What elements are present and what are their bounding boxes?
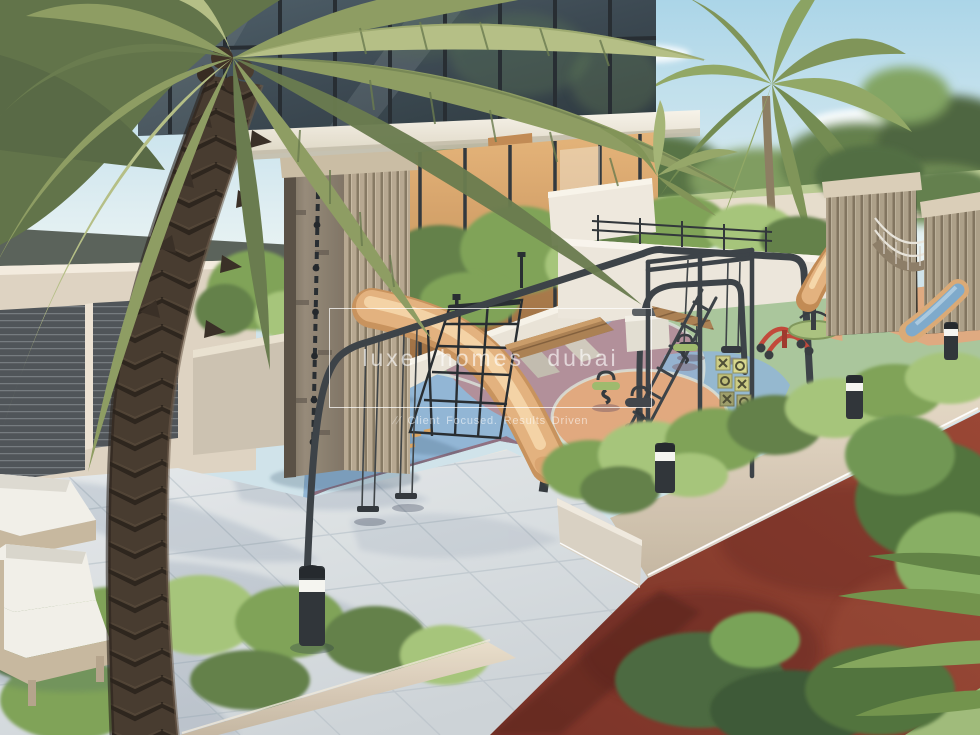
render-image: luxe homes dubai //Client Focused. Resul…	[0, 0, 980, 735]
watermark-slashes: //	[390, 415, 403, 427]
watermark-box: luxe homes dubai	[329, 308, 652, 408]
watermark-tagline: //Client Focused. Results Driven	[299, 415, 682, 427]
watermark-tagline-text: Client Focused. Results Driven	[407, 415, 588, 427]
watermark-title: luxe homes dubai	[330, 309, 651, 407]
